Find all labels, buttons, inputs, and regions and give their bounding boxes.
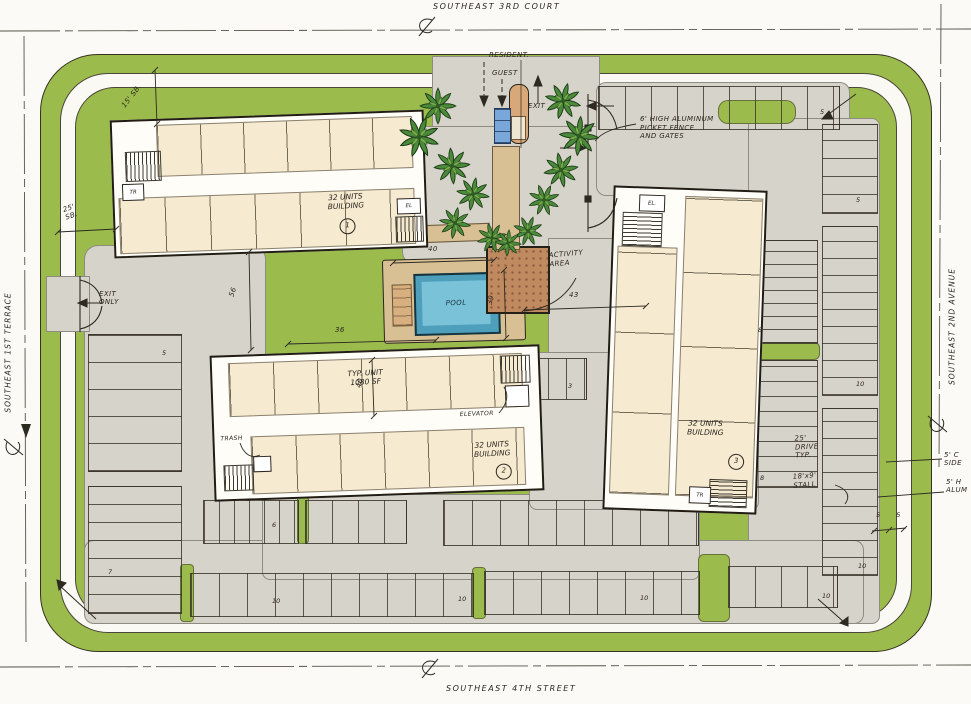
fence-note: 6' HIGH ALUMINUM PICKET FENCE AND GATES	[640, 115, 714, 141]
trash-room: TR	[689, 486, 712, 504]
parking-count-bottom-2: 10	[458, 595, 466, 603]
pool-label: POOL	[446, 299, 467, 308]
building-3-units-left	[609, 246, 678, 496]
fence-note-line2: PICKET FENCE	[640, 124, 714, 133]
parking-count-right-lower: 10	[858, 562, 866, 570]
gate-arm-box	[494, 108, 511, 144]
building-3-number-text: 3	[734, 457, 739, 465]
building-3-label: 32 UNITS BUILDING	[665, 418, 745, 437]
lounge-chair	[392, 284, 413, 327]
building-1-number-text: 1	[345, 221, 350, 229]
building-1-units-top	[156, 116, 414, 177]
building-2-elevator-label: ELEVATOR	[460, 410, 494, 418]
street-label-right: SOUTHEAST 2ND AVENUE	[948, 253, 957, 401]
fence-note-line1: 6' HIGH ALUMINUM	[640, 115, 714, 124]
site-plan-page: { "streets": { "top": "SOUTHEAST 3RD COU…	[0, 0, 971, 704]
trash-room-label: TR	[696, 492, 703, 498]
parking-count-bottom-3: 10	[640, 594, 648, 602]
stall-size-line2: STALL	[793, 480, 817, 490]
parking-count-east-lower: 8	[760, 474, 764, 482]
dim-36: 36	[335, 326, 345, 334]
parking-row-top-right	[598, 86, 840, 130]
exit-only-line1: EXIT	[99, 290, 119, 298]
parking-row-east-lower	[756, 360, 818, 488]
parking-row-left-lower	[88, 486, 182, 614]
parking-count-bottom-4: 10	[822, 592, 830, 600]
parking-row-bottom-3	[728, 566, 838, 608]
entrance-exit-label: EXIT	[528, 102, 545, 110]
parking-row-bottom-2	[484, 571, 700, 615]
building-2-trash-label: TRASH	[220, 435, 242, 443]
parking-row-right-lower	[822, 408, 878, 576]
stairs	[622, 212, 663, 247]
edge-note-sidewalk: 5' C SIDE	[944, 451, 962, 467]
activity-area	[486, 246, 550, 314]
building-3: EL. 32 UNITS BUILDING 3 TR	[602, 185, 767, 514]
trash-room-label: TR	[130, 189, 137, 195]
parking-count-left-lower: 7	[108, 568, 112, 576]
pool-water: POOL	[422, 280, 491, 326]
edge-note-fence-line1: 5' H	[946, 478, 967, 486]
building-1: TR EL 32 UNITS BUILDING 1	[110, 110, 429, 259]
building-2: TRASH ELEVATOR TYP. UNIT 1080 SF 32 UNIT…	[210, 344, 545, 501]
stairs	[125, 151, 162, 182]
stairs	[500, 355, 531, 384]
parking-row-mid-2	[305, 500, 407, 544]
building-2-number-text: 2	[501, 467, 506, 475]
entrance-guest-label: GUEST	[492, 69, 518, 77]
landscape-island	[698, 554, 730, 622]
elevator-shaft	[505, 385, 530, 408]
trash-room: TR	[122, 183, 145, 201]
dim-43: 43	[569, 291, 579, 299]
walkway-building1	[420, 223, 491, 243]
street-label-left: SOUTHEAST 1ST TERRACE	[4, 279, 13, 427]
parking-count-bottom-1: 10	[272, 597, 280, 605]
parking-row-mid-1	[203, 500, 299, 544]
elevator-room: EL.	[639, 194, 666, 212]
elevator-room-label: EL	[405, 203, 412, 209]
stairs	[395, 216, 424, 243]
building-3-units-right	[675, 196, 763, 499]
entrance-resident-label: RESIDENT.	[489, 51, 529, 59]
parking-count-top-right: 5	[820, 108, 824, 116]
edge-note-fence: 5' H ALUM	[946, 478, 967, 494]
edge-note-fence-line2: ALUM	[946, 486, 967, 494]
parking-count-right-upper: 5	[856, 196, 860, 204]
parking-count-right-mid: 10	[856, 380, 864, 388]
edge-note-sidewalk-line2: SIDE	[944, 459, 962, 467]
guard-booth-window	[511, 116, 526, 140]
stairs	[223, 464, 254, 491]
stairs	[709, 479, 748, 508]
parking-row-bottom-1	[190, 573, 474, 617]
parking-row-right-mid	[822, 226, 878, 396]
building-2-units-bottom	[250, 427, 526, 495]
dim-40-pool: 40	[428, 245, 438, 253]
parking-count-left-upper: 5	[162, 349, 166, 357]
exit-only-note: EXIT ONLY	[99, 290, 119, 306]
walkway-entrance-median	[492, 146, 520, 250]
drive-typ-line3: TYP.	[795, 450, 819, 460]
parking-count-east-upper: 8	[758, 326, 762, 334]
stall-size-note: 18'x9' STALL	[792, 471, 817, 490]
street-label-top: SOUTHEAST 3RD COURT	[433, 2, 560, 11]
exit-only-line2: ONLY	[99, 298, 119, 306]
elevator-room-label: EL.	[648, 200, 657, 206]
exit-only-stub	[46, 276, 90, 332]
edge-note-sidewalk-line1: 5' C	[944, 451, 962, 459]
dim-5-pair: 5 5	[876, 511, 907, 519]
parking-row-right-upper	[822, 124, 878, 214]
parking-row-left-upper	[88, 334, 182, 472]
fence-note-line3: AND GATES	[640, 132, 714, 141]
parking-count-mid-island: 6	[272, 521, 276, 529]
building-3-label-line2: BUILDING	[665, 427, 745, 437]
utility-room	[253, 456, 272, 473]
parking-count-guest-small: 3	[568, 382, 572, 390]
street-label-bottom: SOUTHEAST 4TH STREET	[446, 684, 576, 693]
activity-area-label: ACTIVITY AREA	[548, 249, 584, 269]
drive-typ-note: 25' DRIVE TYP.	[794, 433, 819, 460]
